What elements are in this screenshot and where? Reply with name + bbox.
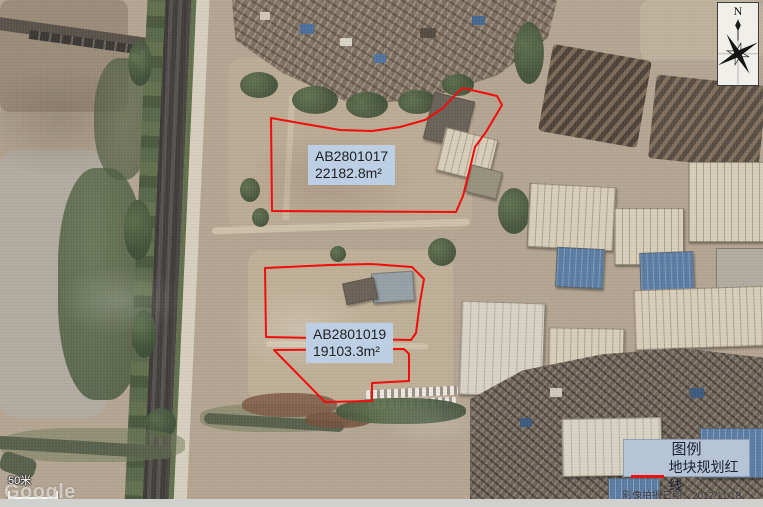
light-roof xyxy=(260,12,270,20)
blue-roof xyxy=(472,16,485,25)
tree xyxy=(240,72,278,98)
blue-roof xyxy=(374,54,386,63)
tree xyxy=(330,246,346,262)
light-roof xyxy=(550,388,562,397)
blue-roof xyxy=(300,24,314,34)
red-line-swatch xyxy=(631,475,664,478)
factory-sheds xyxy=(538,44,652,148)
tree xyxy=(428,238,456,266)
tree-strip xyxy=(336,398,466,424)
tree xyxy=(498,188,530,234)
parcel-area: 19103.3m² xyxy=(313,343,386,360)
map-canvas[interactable]: AB2801017 22182.8m² AB2801019 19103.3m² … xyxy=(0,0,763,507)
warehouse xyxy=(633,286,763,351)
tree xyxy=(252,208,269,227)
warehouse-blue xyxy=(555,247,605,289)
warehouse xyxy=(688,162,763,242)
factory-sheds xyxy=(648,74,763,169)
tree xyxy=(240,178,260,202)
dark-roof xyxy=(420,28,436,38)
parcel-label-AB2801019: AB2801019 19103.3m² xyxy=(306,323,393,363)
parcel-label-AB2801017: AB2801017 22182.8m² xyxy=(308,145,395,185)
parcel-id: AB2801019 xyxy=(313,326,386,343)
tree xyxy=(442,74,474,96)
tree xyxy=(132,310,156,358)
legend-title: 图例 xyxy=(624,442,749,458)
tree xyxy=(346,92,388,118)
parcel-id: AB2801017 xyxy=(315,148,388,165)
blue-roof xyxy=(520,418,532,427)
compass-rose: N xyxy=(717,2,759,86)
bottom-edge-strip xyxy=(0,499,763,507)
legend: 图例 地块规划红线 xyxy=(623,439,750,477)
blue-roof xyxy=(690,388,704,398)
tree xyxy=(292,86,338,114)
parcel-area: 22182.8m² xyxy=(315,165,388,182)
tree xyxy=(124,200,152,260)
tree-strip xyxy=(514,22,544,84)
light-roof xyxy=(340,38,352,46)
warehouse xyxy=(526,183,616,251)
compass-star-icon xyxy=(718,17,758,85)
tree xyxy=(128,40,152,86)
